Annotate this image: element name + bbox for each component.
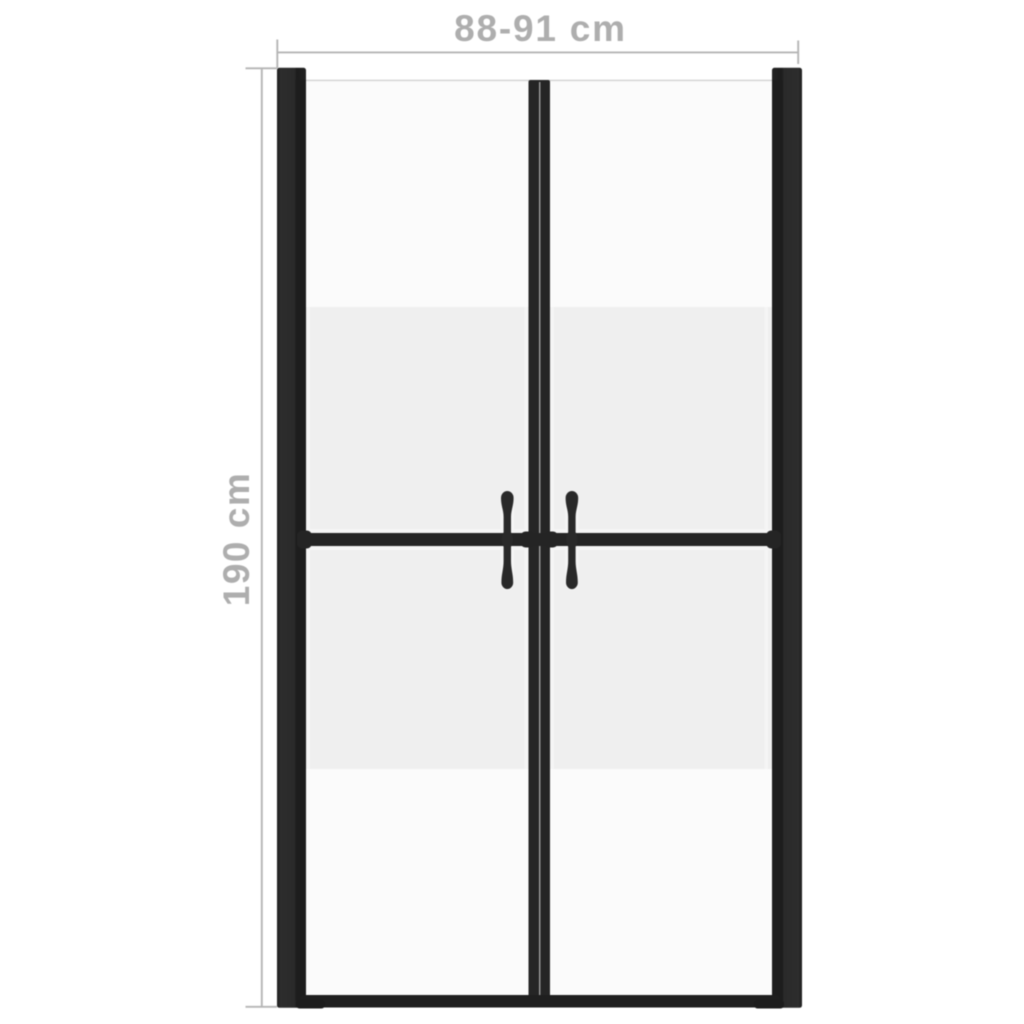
svg-text:190 cm: 190 cm (216, 472, 257, 607)
svg-text:88-91 cm: 88-91 cm (454, 8, 627, 49)
